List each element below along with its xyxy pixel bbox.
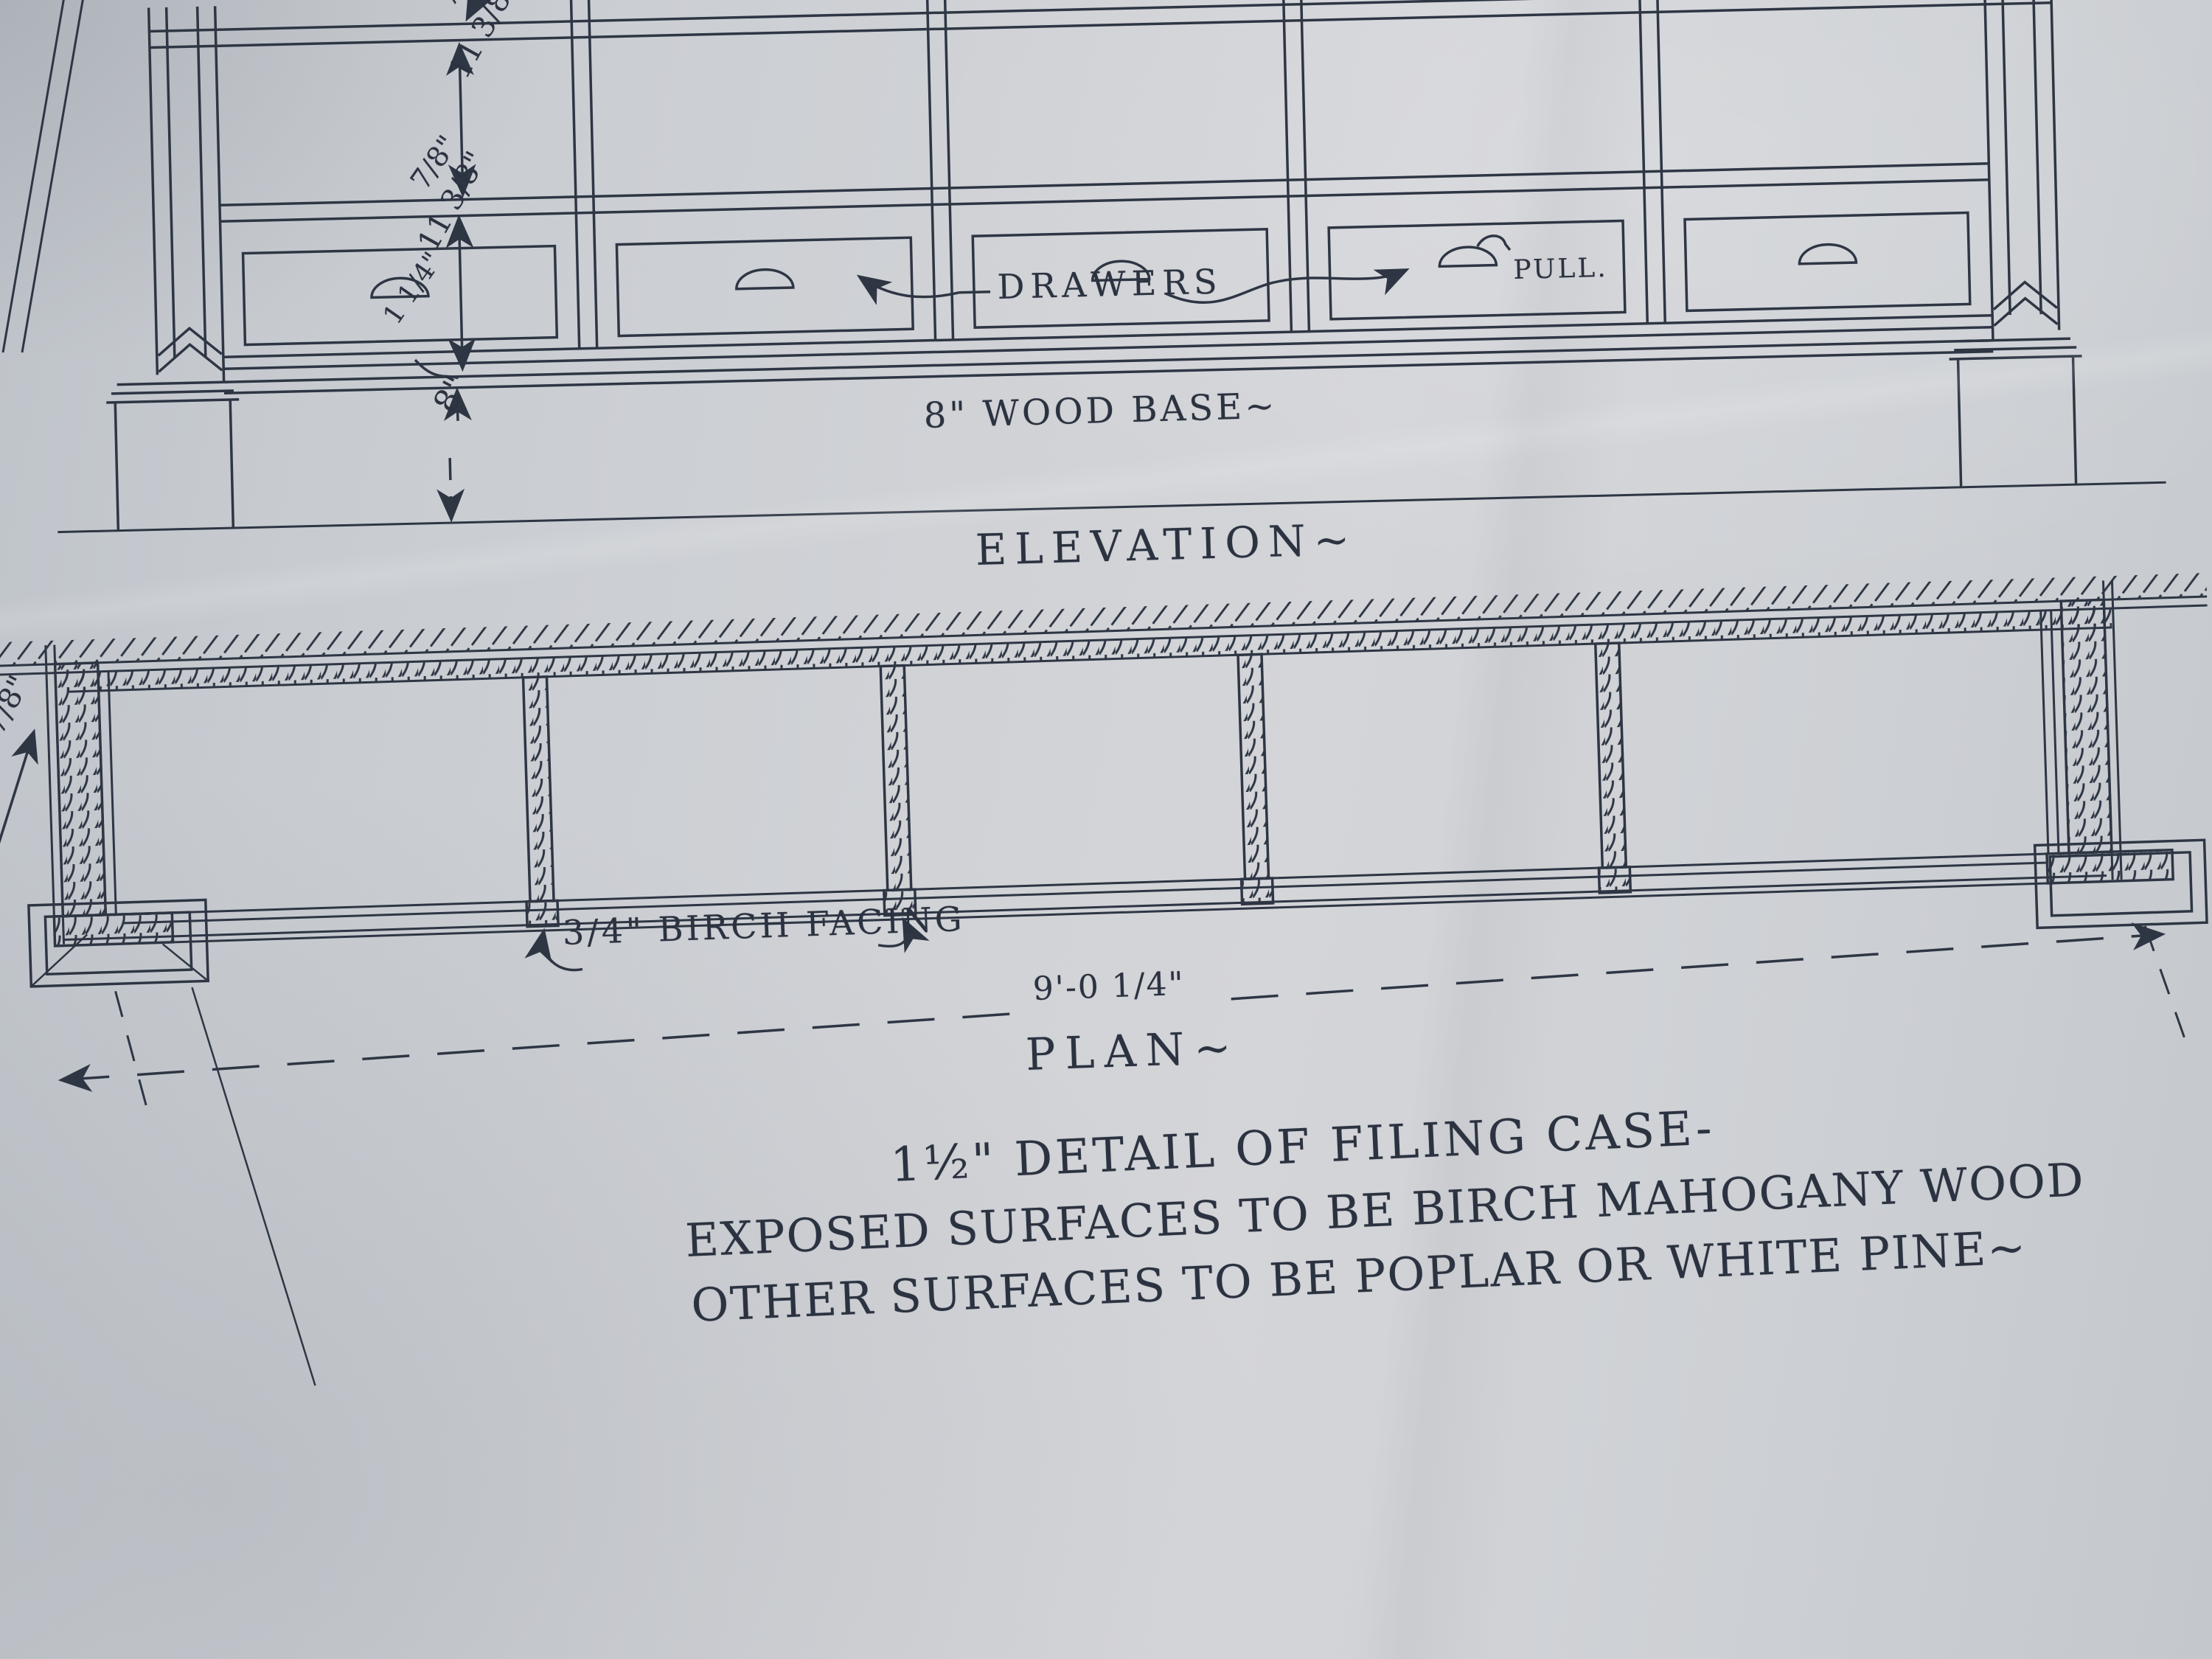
plan-overall-width-dim: 9'-0 1/4": [1032, 965, 1186, 1008]
drawing-sheet: 7/8" 11 3/8" 7/8" 11 3/8" 1 1/4" 8" DRAW…: [0, 0, 2212, 1659]
drawers-label: DRAWERS: [997, 262, 1223, 307]
elevation-title: ELEVATION~: [975, 515, 1358, 575]
plan-title: PLAN~: [1025, 1022, 1242, 1081]
drawer-pull-icon: [1799, 244, 1857, 264]
sheet-edge-lines: [3, 0, 84, 352]
blueprint-linework: [0, 0, 2212, 1659]
drawer-pull-icon: [736, 269, 793, 289]
pull-detail-icon: [1439, 235, 1510, 266]
pull-label: PULL.: [1513, 253, 1608, 285]
